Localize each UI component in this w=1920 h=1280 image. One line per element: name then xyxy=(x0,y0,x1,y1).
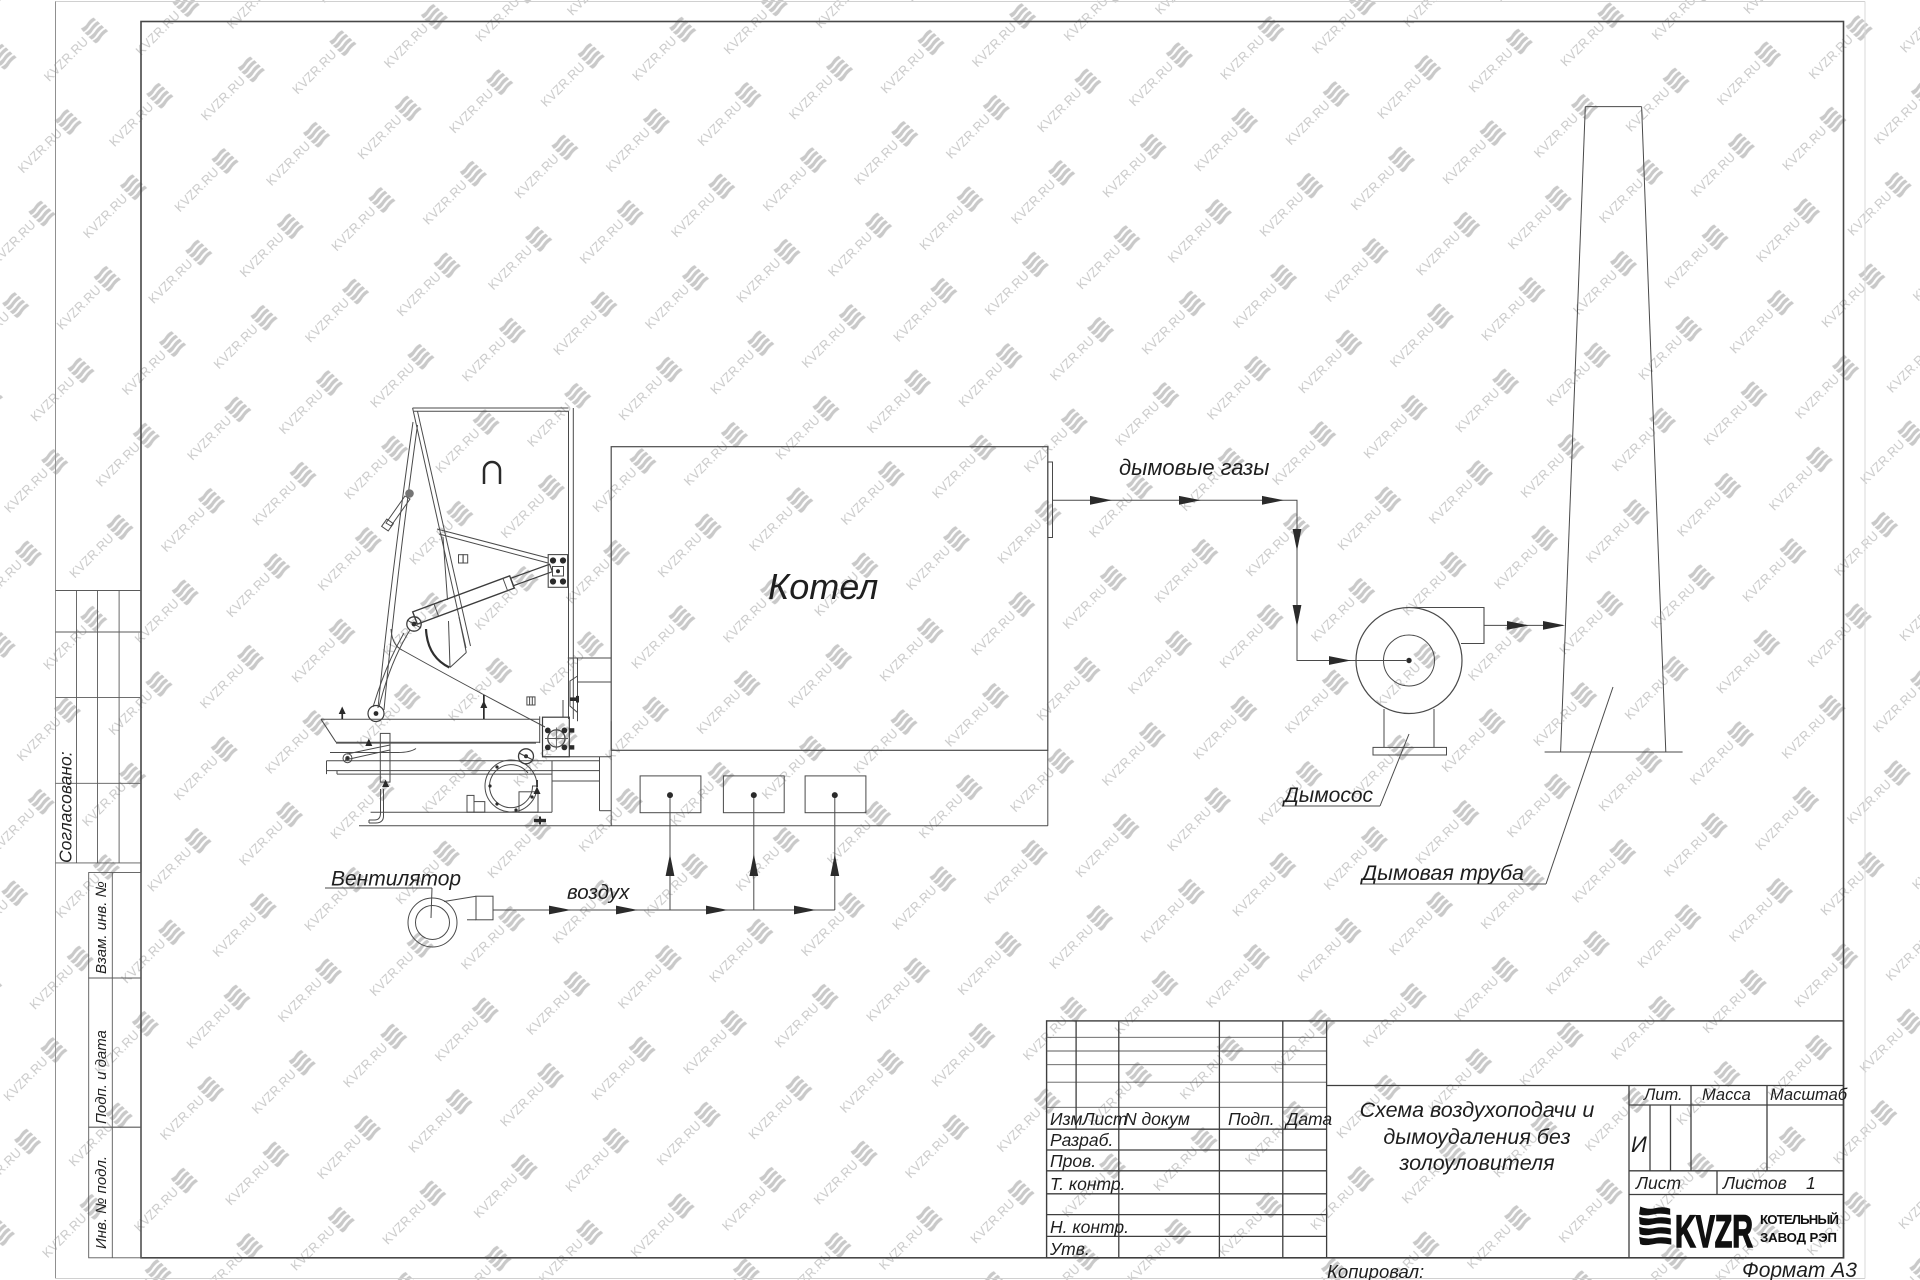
svg-text:дымовые газы: дымовые газы xyxy=(1119,455,1269,480)
svg-text:Дымовая труба: Дымовая труба xyxy=(1360,861,1524,885)
svg-text:Масса: Масса xyxy=(1702,1086,1751,1104)
svg-text:Н. контр.: Н. контр. xyxy=(1050,1217,1129,1237)
svg-text:Дата: Дата xyxy=(1284,1109,1332,1129)
svg-text:Пров.: Пров. xyxy=(1050,1151,1096,1171)
svg-text:Лит.: Лит. xyxy=(1643,1086,1683,1104)
svg-text:Схема воздухоподачи и: Схема воздухоподачи и xyxy=(1360,1098,1595,1122)
svg-text:Утв.: Утв. xyxy=(1049,1239,1090,1259)
svg-text:Т. контр.: Т. контр. xyxy=(1050,1174,1125,1194)
svg-text:дымоудаления без: дымоудаления без xyxy=(1383,1125,1570,1149)
svg-text:Вентилятор: Вентилятор xyxy=(331,868,461,891)
svg-text:КОТЕЛЬНЫЙ: КОТЕЛЬНЫЙ xyxy=(1760,1212,1839,1227)
svg-text:золоуловителя: золоуловителя xyxy=(1398,1151,1555,1175)
svg-text:И: И xyxy=(1631,1132,1647,1157)
svg-text:1: 1 xyxy=(1806,1173,1816,1193)
svg-text:Дымосос: Дымосос xyxy=(1282,784,1373,807)
svg-text:ЗАВОД РЭП: ЗАВОД РЭП xyxy=(1760,1230,1837,1245)
svg-text:воздух: воздух xyxy=(567,881,630,904)
svg-text:Разраб.: Разраб. xyxy=(1050,1130,1113,1150)
svg-text:Копировал:: Копировал: xyxy=(1327,1261,1424,1280)
svg-text:ИзмЛист: ИзмЛист xyxy=(1050,1109,1128,1129)
svg-text:Взам. инв. №: Взам. инв. № xyxy=(93,881,110,974)
svg-text:Инв. № подл.: Инв. № подл. xyxy=(93,1156,110,1249)
svg-text:Лист: Лист xyxy=(1635,1173,1681,1193)
svg-text:KVZR: KVZR xyxy=(1675,1206,1753,1257)
svg-text:Подп. и дата: Подп. и дата xyxy=(93,1030,110,1124)
svg-text:Подп.: Подп. xyxy=(1228,1109,1275,1129)
svg-text:Масштаб: Масштаб xyxy=(1770,1086,1848,1104)
svg-text:Листов: Листов xyxy=(1722,1173,1787,1193)
svg-text:Формат А3: Формат А3 xyxy=(1742,1259,1857,1280)
svg-text:Согласовано:: Согласовано: xyxy=(56,751,76,863)
svg-text:Котел: Котел xyxy=(768,566,878,607)
svg-text:N докум: N докум xyxy=(1124,1109,1190,1129)
